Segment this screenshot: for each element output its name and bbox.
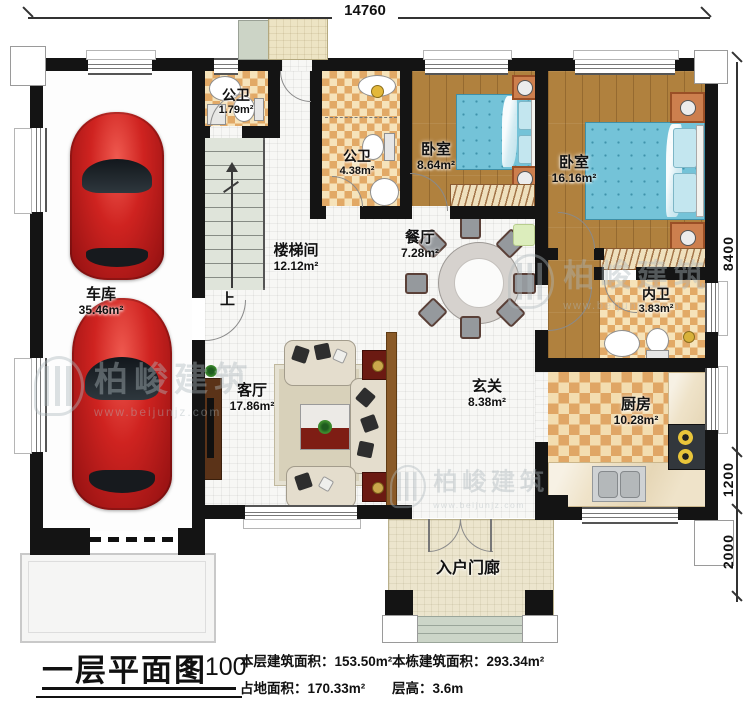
porch-pillar	[525, 590, 553, 616]
wall	[636, 267, 705, 280]
bedroom1-bed	[456, 94, 536, 170]
bed-headboard	[696, 125, 704, 217]
window-sill	[573, 50, 679, 60]
window-sill	[423, 50, 512, 60]
window	[30, 128, 47, 212]
car-windshield	[82, 159, 152, 193]
ensuite-towel-hook	[683, 331, 695, 343]
door-leaf	[428, 519, 430, 552]
wall	[535, 442, 548, 505]
kitchen-opening	[535, 372, 548, 442]
stair-arrow-up-icon	[226, 162, 238, 172]
wall	[357, 505, 412, 519]
window	[88, 58, 152, 75]
car-rear-window	[86, 248, 148, 266]
dimension-tick	[731, 51, 742, 62]
wall	[178, 528, 205, 555]
window-sill	[718, 366, 728, 434]
title-underline-2	[36, 696, 242, 698]
dimension-tick	[22, 6, 33, 17]
room-label-garage: 车库 35.46m²	[56, 284, 146, 320]
porch-pillar-base	[522, 615, 558, 643]
dimension-label-2000: 2000	[720, 534, 736, 569]
pier	[694, 50, 728, 84]
dining-chair	[513, 273, 536, 294]
room-label-stairwell: 楼梯间 12.12m²	[248, 240, 344, 276]
dining-chair	[405, 273, 428, 294]
wall	[360, 206, 400, 219]
sofa-cushion	[314, 343, 332, 361]
wall	[152, 58, 214, 71]
wall	[205, 505, 245, 519]
wall	[310, 206, 326, 219]
window-sill	[243, 519, 361, 529]
pier	[10, 46, 46, 86]
foyer-partition	[386, 332, 397, 507]
wall	[30, 528, 90, 555]
plant-icon	[205, 365, 217, 377]
car	[72, 298, 172, 510]
window-sill	[14, 358, 32, 454]
stat-total-area: 本栋建筑面积：293.34m²	[392, 650, 544, 670]
dining-table-top	[454, 258, 504, 308]
floor-plan: 柏峻建筑 www.beijunjz.com 柏峻建筑 www.beijunjz.…	[0, 0, 750, 703]
window-sill	[718, 281, 728, 336]
window	[575, 58, 675, 75]
wall	[568, 507, 582, 520]
wall	[192, 126, 210, 138]
room-label-kitchen: 厨房 10.28m²	[596, 394, 676, 430]
room-label-ensuite: 内卫 3.83m²	[618, 284, 694, 318]
wall	[705, 332, 718, 368]
lamp-icon	[680, 230, 696, 246]
bath2-shower-curtain	[325, 117, 397, 118]
window	[425, 58, 508, 75]
dimension-label-1200: 1200	[720, 462, 736, 497]
stat-footprint-area: 占地面积：170.33m²	[240, 677, 365, 697]
porch-pillar	[385, 590, 413, 616]
room-label-living: 客厅 17.86m²	[210, 380, 294, 416]
bedroom1-wardrobe	[450, 184, 535, 208]
page-title: 一层平面图	[42, 645, 207, 690]
window	[214, 58, 238, 75]
car-windshield	[85, 357, 159, 399]
bed-pillow	[673, 173, 697, 213]
medallion-icon	[372, 360, 384, 372]
title-underline	[42, 687, 236, 690]
bath2-shower-head	[371, 85, 384, 98]
sofa-cushion	[357, 441, 375, 459]
wall	[312, 58, 425, 71]
stat-floor-area: 本层建筑面积：153.50m²	[240, 650, 392, 670]
porch-pillar-base	[382, 615, 418, 643]
car	[70, 112, 164, 280]
stair-up-label: 上	[220, 288, 235, 309]
wall	[594, 267, 604, 280]
wall	[508, 58, 575, 71]
room-label-porch: 入户门廊	[398, 558, 538, 580]
door-leaf	[490, 519, 492, 552]
dimension-label-width: 14760	[332, 2, 398, 19]
room-label-bedroom1: 卧室 8.64m²	[404, 140, 468, 174]
room-label-bath1: 公卫 1.79m²	[202, 84, 270, 120]
bed-pillow	[673, 128, 697, 168]
wall	[678, 507, 718, 520]
bedroom2-nightstand	[670, 92, 705, 123]
wall	[535, 330, 548, 372]
kitchen-sink	[592, 466, 646, 502]
sink-basin	[620, 471, 640, 498]
driveway-inner-line	[28, 561, 206, 633]
wall	[594, 248, 604, 260]
bed-fold	[502, 96, 517, 167]
plant-box	[513, 224, 535, 246]
room-label-bedroom2: 卧室 16.16m²	[538, 152, 610, 188]
entry-canopy	[268, 18, 328, 60]
window-sill	[86, 50, 156, 60]
ensuite-sink	[604, 330, 640, 357]
window	[582, 507, 678, 524]
room-label-foyer: 玄关 8.38m²	[450, 376, 524, 412]
lamp-icon	[517, 80, 533, 96]
window	[30, 358, 47, 452]
bath2-sink	[370, 178, 399, 206]
scale-label: 1:100	[184, 653, 247, 682]
wall	[400, 206, 407, 219]
dimension-line-right	[736, 62, 738, 602]
coffee-table	[300, 404, 350, 450]
stove-burner-icon	[678, 449, 693, 464]
plant-icon	[318, 420, 332, 434]
window-sill	[14, 128, 32, 214]
room-label-dining: 餐厅 7.28m²	[384, 228, 456, 262]
wall	[450, 206, 535, 219]
stove-burner-icon	[678, 430, 693, 445]
dining-chair	[460, 316, 481, 339]
sink-basin	[598, 471, 618, 498]
kitchen-stove	[668, 424, 706, 470]
dimension-label-8400: 8400	[720, 236, 736, 271]
medallion-icon	[372, 482, 384, 494]
wall	[548, 358, 705, 372]
wall	[705, 71, 718, 283]
wall	[30, 212, 43, 358]
stair-direction-line	[231, 172, 233, 288]
dining-chair	[460, 216, 481, 239]
roof-structure	[238, 20, 270, 60]
garage-door-dashed	[90, 537, 178, 542]
wall	[310, 71, 322, 208]
wall	[548, 248, 558, 260]
porch-steps	[413, 616, 527, 643]
dimension-tick	[700, 6, 711, 17]
wall	[192, 340, 205, 555]
lamp-icon	[680, 100, 696, 116]
stat-floor-height: 层高：3.6m	[392, 677, 463, 697]
room-label-bath2: 公卫 4.38m²	[328, 146, 386, 180]
